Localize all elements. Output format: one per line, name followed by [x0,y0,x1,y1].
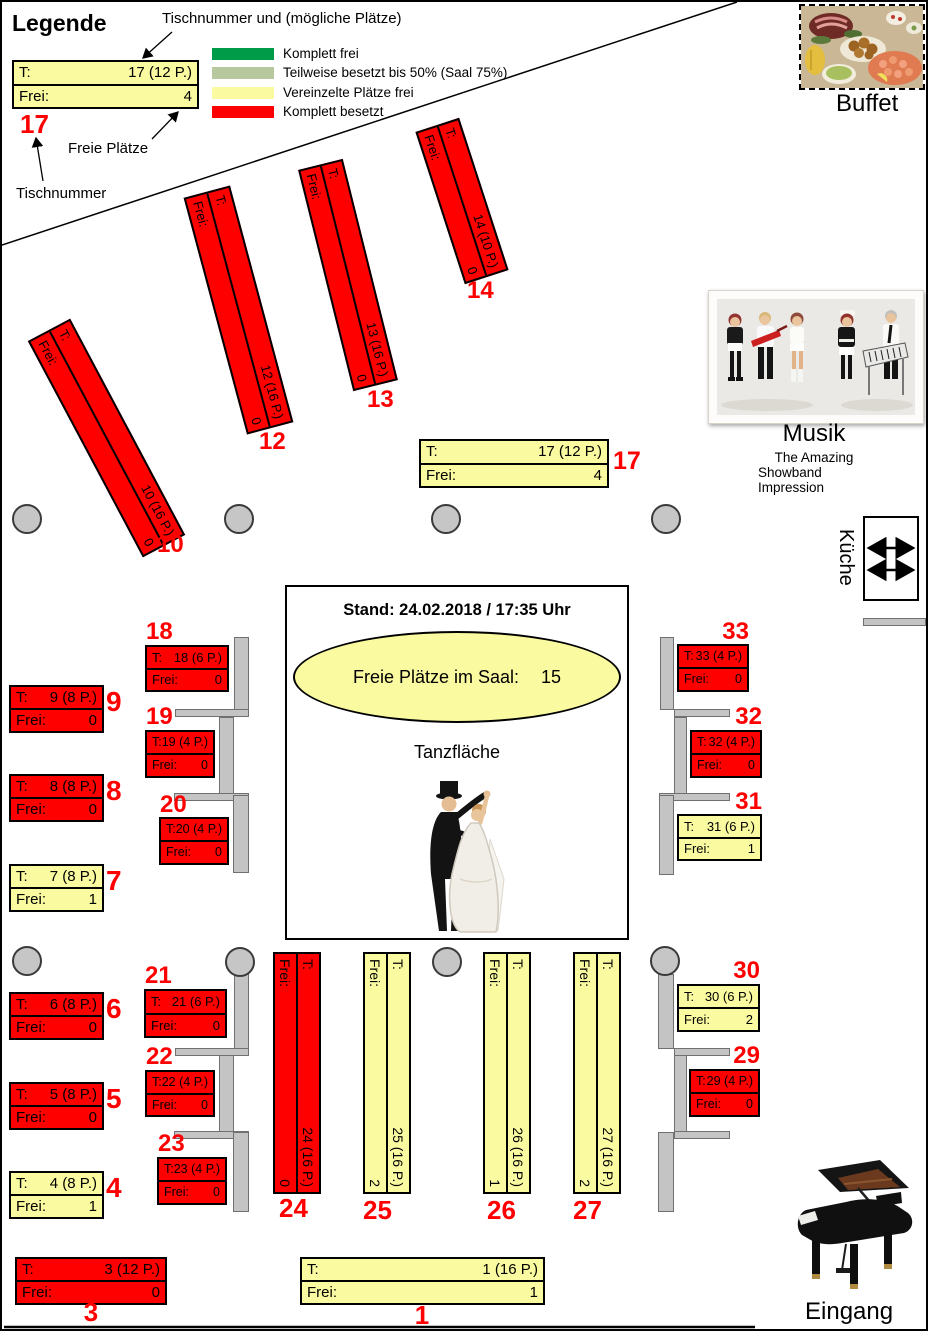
table-row-capacity: T:3 (12 P.) [17,1259,165,1282]
t-label: T: [16,779,28,794]
tables-layer: T:1 (16 P.)Frei:11T:3 (12 P.)Frei:03T:4 … [2,2,926,1329]
table-22[interactable]: T:22 (4 P.)Frei:0 [145,1070,215,1117]
table-14[interactable]: T:14 (10 P.)Frei:0 [415,118,508,284]
table-row-capacity: T:22 (4 P.) [147,1072,213,1095]
capacity-value: 27 (16 P.) [602,1127,616,1187]
table-row-capacity: T:9 (8 P.) [11,687,102,710]
table-row-free: Frei:0 [11,799,102,820]
table-5[interactable]: T:5 (8 P.)Frei:0 [9,1082,104,1130]
table-number-label-3: 3 [84,1299,98,1325]
table-row-capacity: T:8 (8 P.) [11,776,102,799]
frei-label: Frei: [16,1199,46,1214]
capacity-value: 22 (4 P.) [162,1076,208,1089]
capacity-value: 20 (4 P.) [176,823,222,836]
capacity-value: 24 (16 P.) [302,1127,316,1187]
table-row-capacity: T:19 (4 P.) [147,732,213,755]
capacity-value: 3 (12 P.) [104,1262,160,1277]
frei-label: Frei: [307,1285,337,1300]
pillar [12,504,42,534]
frei-label: Frei: [16,1110,46,1125]
table-18[interactable]: T:18 (6 P.)Frei:0 [145,645,229,692]
capacity-value: 26 (16 P.) [512,1127,526,1187]
frei-label: Frei: [696,1098,721,1111]
frei-label: Frei: [684,1013,710,1026]
table-row-capacity: T:1 (16 P.) [302,1259,543,1282]
free-value: 1 [748,842,755,855]
capacity-value: 4 (8 P.) [50,1176,97,1191]
capacity-value: 33 (4 P.) [696,650,742,663]
table-10[interactable]: T:10 (16 P.)Frei:0 [27,319,184,558]
free-value: 0 [89,713,97,728]
t-label: T: [16,869,28,884]
frei-label: Frei: [16,802,46,817]
free-value: 0 [748,759,755,772]
table-33[interactable]: T:33 (4 P.)Frei:0 [677,644,749,692]
pillar [12,946,42,976]
table-27[interactable]: T:27 (16 P.)Frei:2 [573,952,621,1194]
frei-label: Frei: [22,1285,52,1300]
capacity-value: 29 (4 P.) [707,1075,753,1088]
hall-plan: Legende Tischnummer und (mögliche Plätze… [0,0,928,1331]
free-value: 1 [489,1179,503,1187]
table-19[interactable]: T:19 (4 P.)Frei:0 [145,730,215,778]
frei-label: Frei: [369,959,383,987]
legend-example-table-number: 17 [20,111,49,137]
table-29[interactable]: T:29 (4 P.)Frei:0 [689,1069,760,1117]
t-label: T: [512,959,526,970]
table-row-capacity: T:30 (6 P.) [679,986,758,1009]
free-value: 0 [141,536,156,548]
frei-label: Frei: [423,133,443,162]
capacity-value: 9 (8 P.) [50,690,97,705]
capacity-value: 31 (6 P.) [707,820,755,833]
t-label: T: [152,736,162,749]
table-number-label-9: 9 [106,688,122,716]
free-value: 1 [89,892,97,907]
pillar [224,504,254,534]
free-value: 0 [213,1019,220,1032]
table-8[interactable]: T:8 (8 P.)Frei:0 [9,774,104,822]
table-25[interactable]: T:25 (16 P.)Frei:2 [363,952,411,1194]
free-value: 0 [355,373,369,383]
pillar [431,504,461,534]
table-row-free: Frei:4 [421,465,607,487]
pillar [651,504,681,534]
table-row-capacity: T:26 (16 P.) [506,954,529,1192]
free-value: 2 [746,1013,753,1026]
frei-label: Frei: [279,959,293,987]
table-number-label-32: 32 [735,705,762,729]
table-number-label-29: 29 [733,1044,760,1068]
frei-label: Frei: [16,892,46,907]
table-number-label-31: 31 [735,790,762,814]
table-row-capacity: T:18 (6 P.) [147,647,227,670]
table-row-capacity: T:21 (6 P.) [146,991,225,1015]
table-row-free: Frei:1 [11,889,102,910]
table-number-label-10: 10 [157,533,184,557]
table-row-free: Frei:0 [11,1107,102,1128]
t-label: T: [684,650,694,663]
table-row-capacity: T:23 (4 P.) [159,1159,225,1182]
table-row-capacity: T:17 (12 P.) [421,441,607,465]
table-32[interactable]: T:32 (4 P.)Frei:0 [690,730,762,778]
t-label: T: [16,1176,28,1191]
t-label: T: [392,959,406,970]
t-label: T: [152,1076,162,1089]
table-20[interactable]: T:20 (4 P.)Frei:0 [159,817,229,865]
capacity-value: 6 (8 P.) [50,997,97,1012]
capacity-value: 17 (12 P.) [538,444,602,459]
table-26[interactable]: T:26 (16 P.)Frei:1 [483,952,531,1194]
free-value: 0 [213,1186,220,1199]
table-number-label-23: 23 [158,1132,185,1156]
table-number-label-5: 5 [106,1085,122,1113]
t-label: T: [22,1262,34,1277]
table-12[interactable]: T:12 (16 P.)Frei:0 [183,185,293,434]
table-row-free: Frei:0 [691,1094,758,1115]
table-row-capacity: T:4 (8 P.) [11,1173,102,1196]
table-number-label-25: 25 [363,1197,392,1223]
table-number-label-33: 33 [722,620,749,644]
t-label: T: [697,736,707,749]
t-label: T: [16,690,28,705]
table-row-free: Frei:0 [147,1095,213,1116]
t-label: T: [151,995,161,1008]
table-number-label-14: 14 [467,279,494,303]
table-row-capacity: T:33 (4 P.) [679,646,747,669]
table-9[interactable]: T:9 (8 P.)Frei:0 [9,685,104,733]
table-4[interactable]: T:4 (8 P.)Frei:1 [9,1171,104,1219]
table-30[interactable]: T:30 (6 P.)Frei:2 [677,984,760,1032]
table-24[interactable]: T:24 (16 P.)Frei:0 [273,952,321,1194]
table-row-free: Frei:1 [485,954,506,1192]
table-number-label-8: 8 [106,777,122,805]
frei-label: Frei: [152,673,178,686]
t-label: T: [444,126,459,140]
t-label: T: [307,1262,319,1277]
table-row-free: Frei:1 [679,839,760,860]
capacity-value: 25 (16 P.) [392,1127,406,1187]
free-value: 1 [89,1199,97,1214]
frei-label: Frei: [684,842,710,855]
free-value: 0 [201,759,208,772]
free-value: 0 [746,1098,753,1111]
table-row-free: Frei:0 [161,842,227,863]
table-row-capacity: T:25 (16 P.) [386,954,409,1192]
table-17[interactable]: T:17 (12 P.)Frei:4 [419,439,609,488]
capacity-value: 1 (16 P.) [482,1262,538,1277]
free-value: 0 [152,1285,160,1300]
free-value: 0 [466,265,481,276]
table-1[interactable]: T:1 (16 P.)Frei:1 [300,1257,545,1305]
table-row-free: Frei:0 [146,1015,225,1037]
table-number-label-30: 30 [733,959,760,983]
t-label: T: [16,997,28,1012]
table-row-free: Frei:0 [11,1017,102,1038]
table-number-label-6: 6 [106,995,122,1023]
table-31[interactable]: T:31 (6 P.)Frei:1 [677,814,762,861]
frei-label: Frei: [152,759,177,772]
free-value: 0 [279,1179,293,1187]
free-value: 0 [89,802,97,817]
table-row-capacity: T:5 (8 P.) [11,1084,102,1107]
table-row-free: Frei:2 [365,954,386,1192]
table-row-free: Frei:0 [147,755,213,776]
table-row-free: Frei:0 [147,670,227,691]
t-label: T: [696,1075,706,1088]
table-number-label-24: 24 [279,1195,308,1221]
table-row-capacity: T:29 (4 P.) [691,1071,758,1094]
frei-label: Frei: [164,1186,189,1199]
frei-label: Frei: [166,846,191,859]
frei-label: Frei: [151,1019,177,1032]
t-label: T: [16,1087,28,1102]
capacity-value: 8 (8 P.) [50,779,97,794]
table-row-free: Frei:0 [692,755,760,776]
pillar [432,947,462,977]
table-row-free: Frei:2 [679,1009,758,1030]
table-row-capacity: T:31 (6 P.) [679,816,760,839]
free-value: 0 [215,673,222,686]
table-number-label-20: 20 [160,793,187,817]
table-number-label-21: 21 [145,964,172,988]
table-number-label-7: 7 [106,867,122,895]
table-row-capacity: T:24 (16 P.) [296,954,319,1192]
pillar [650,946,680,976]
frei-label: Frei: [16,1020,46,1035]
pillar [225,947,255,977]
capacity-value: 32 (4 P.) [709,736,755,749]
frei-label: Frei: [579,959,593,987]
table-row-free: Frei:0 [30,332,162,555]
table-13[interactable]: T:13 (16 P.)Frei:0 [298,159,398,391]
t-label: T: [166,823,176,836]
table-row-free: Frei:0 [159,1182,225,1203]
capacity-value: 7 (8 P.) [50,869,97,884]
free-value: 0 [735,673,742,686]
capacity-value: 19 (4 P.) [162,736,208,749]
capacity-value: 30 (6 P.) [705,990,753,1003]
table-row-free: Frei:0 [275,954,296,1192]
capacity-value: 21 (6 P.) [172,995,220,1008]
free-value: 2 [579,1179,593,1187]
free-value: 1 [530,1285,538,1300]
frei-label: Frei: [684,673,709,686]
frei-label: Frei: [697,759,722,772]
table-row-capacity: T:7 (8 P.) [11,866,102,889]
free-value: 4 [594,468,602,483]
t-label: T: [684,990,694,1003]
table-row-capacity: T:32 (4 P.) [692,732,760,755]
free-value: 0 [249,416,263,426]
capacity-value: 18 (6 P.) [174,651,222,664]
table-23[interactable]: T:23 (4 P.)Frei:0 [157,1157,227,1205]
t-label: T: [602,959,616,970]
frei-label: Frei: [16,713,46,728]
table-number-label-17: 17 [613,449,641,474]
table-number-label-18: 18 [146,620,173,644]
t-label: T: [426,444,438,459]
table-number-label-19: 19 [146,705,173,729]
frei-label: Frei: [191,200,210,228]
table-row-capacity: T:27 (16 P.) [596,954,619,1192]
capacity-value: 23 (4 P.) [174,1163,220,1176]
t-label: T: [152,651,162,664]
t-label: T: [326,167,341,180]
table-7[interactable]: T:7 (8 P.)Frei:1 [9,864,104,912]
capacity-value: 5 (8 P.) [50,1087,97,1102]
table-row-free: Frei:0 [679,669,747,690]
table-row-free: Frei:0 [11,710,102,731]
frei-label: Frei: [489,959,503,987]
free-value: 0 [89,1020,97,1035]
t-label: T: [56,328,72,343]
t-label: T: [684,820,694,833]
t-label: T: [302,959,316,970]
free-value: 0 [89,1110,97,1125]
table-row-capacity: T:10 (16 P.) [49,321,182,545]
frei-label: Frei: [152,1099,177,1112]
table-21[interactable]: T:21 (6 P.)Frei:0 [144,989,227,1038]
table-row-free: Frei:1 [11,1196,102,1217]
table-number-label-1: 1 [415,1302,429,1328]
table-row-capacity: T:6 (8 P.) [11,994,102,1017]
table-number-label-26: 26 [487,1197,516,1223]
table-number-label-22: 22 [146,1045,173,1069]
frei-label: Frei: [426,468,456,483]
free-value: 2 [369,1179,383,1187]
free-value: 0 [201,1099,208,1112]
table-6[interactable]: T:6 (8 P.)Frei:0 [9,992,104,1040]
table-number-label-27: 27 [573,1197,602,1223]
t-label: T: [213,194,228,207]
table-number-label-13: 13 [367,388,394,412]
t-label: T: [164,1163,174,1176]
free-value: 0 [215,846,222,859]
table-number-label-4: 4 [106,1174,122,1202]
table-row-free: Frei:2 [575,954,596,1192]
table-row-capacity: T:20 (4 P.) [161,819,227,842]
frei-label: Frei: [305,172,324,200]
table-number-label-12: 12 [259,430,286,454]
